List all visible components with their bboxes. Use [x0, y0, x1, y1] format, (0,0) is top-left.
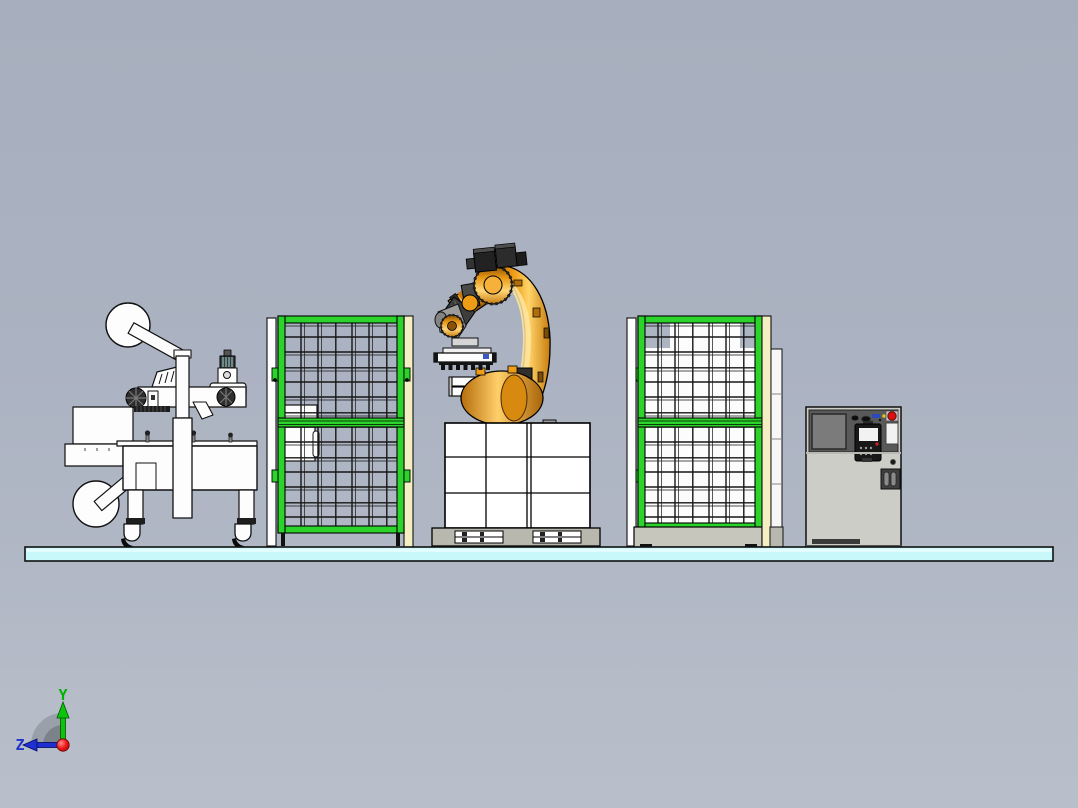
indicator-display	[872, 414, 880, 418]
rear-column	[770, 349, 783, 547]
pallet-window	[455, 531, 503, 543]
carton-stack[interactable]	[445, 423, 590, 528]
model-scene: Y Z	[0, 0, 1078, 808]
emergency-stop-button[interactable]	[886, 411, 898, 421]
indicator-lamp	[882, 414, 886, 418]
document-holder	[886, 423, 898, 444]
drive-roller-right	[217, 388, 235, 406]
teach-pendant[interactable]	[855, 421, 881, 462]
control-cabinet[interactable]	[806, 407, 901, 547]
column-upper	[176, 356, 189, 418]
fence-post-beige	[762, 316, 771, 548]
base-hub	[501, 375, 527, 421]
infeed-box-lower	[65, 444, 123, 466]
fence-post-white	[627, 318, 636, 546]
fence-foot	[281, 533, 285, 546]
axis-z-label: Z	[15, 736, 24, 754]
fence-post-beige	[404, 316, 413, 548]
vent-slot	[812, 539, 860, 544]
counterweight	[465, 242, 527, 273]
door-handle[interactable]	[881, 469, 900, 489]
caster-right	[232, 524, 251, 550]
panel-divider	[806, 452, 901, 454]
palletizing-robot[interactable]	[434, 242, 556, 432]
safety-fence-left[interactable]	[267, 316, 413, 548]
fence-foot	[396, 533, 400, 546]
floor-platform[interactable]	[25, 547, 1053, 561]
door-lock[interactable]	[890, 459, 895, 464]
connector-port	[862, 416, 871, 422]
safety-fence-right[interactable]	[627, 316, 783, 548]
infeed-box-upper	[73, 407, 133, 444]
fence-mesh-upper	[284, 322, 398, 418]
origin-sphere	[57, 739, 69, 751]
robot-wrist	[435, 295, 478, 338]
carton-sealing-machine[interactable]	[65, 303, 257, 550]
gripper-sensor	[483, 354, 489, 359]
floor-highlight	[27, 549, 1051, 552]
column-lower	[173, 418, 192, 518]
pendant-screen	[859, 428, 878, 441]
button[interactable]	[879, 419, 881, 421]
tension-motor	[218, 350, 237, 383]
fence-base-block	[634, 527, 762, 547]
connector-port	[852, 416, 859, 421]
pendant-estop	[875, 442, 878, 445]
fence-mesh-lower	[284, 427, 398, 527]
vacuum-gripper	[434, 338, 496, 370]
caster-left	[121, 524, 140, 550]
drive-roller-left	[126, 388, 146, 408]
cad-viewport: Y Z	[0, 0, 1078, 808]
coordinate-triad: Y Z	[15, 686, 69, 754]
cabinet-screen	[812, 414, 846, 449]
pallet[interactable]	[432, 528, 600, 546]
axis-y-label: Y	[58, 686, 67, 704]
fence-post-white	[267, 318, 276, 546]
pallet-window	[533, 531, 581, 543]
fence-mesh-lower	[644, 427, 756, 524]
fence-mesh-upper	[644, 322, 756, 418]
